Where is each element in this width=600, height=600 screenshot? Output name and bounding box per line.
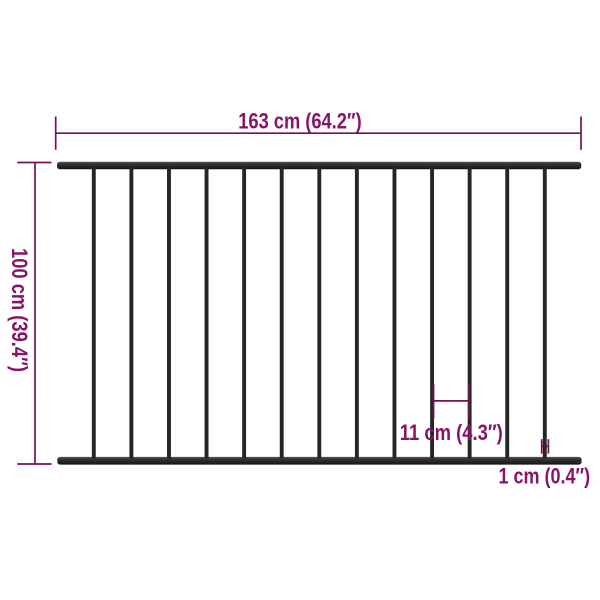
svg-text:163 cm (64.2″): 163 cm (64.2″) xyxy=(238,108,362,133)
svg-text:100 cm (39.4″): 100 cm (39.4″) xyxy=(7,248,32,372)
svg-text:11 cm (4.3″): 11 cm (4.3″) xyxy=(400,420,503,445)
svg-text:1 cm (0.4″): 1 cm (0.4″) xyxy=(499,463,591,488)
